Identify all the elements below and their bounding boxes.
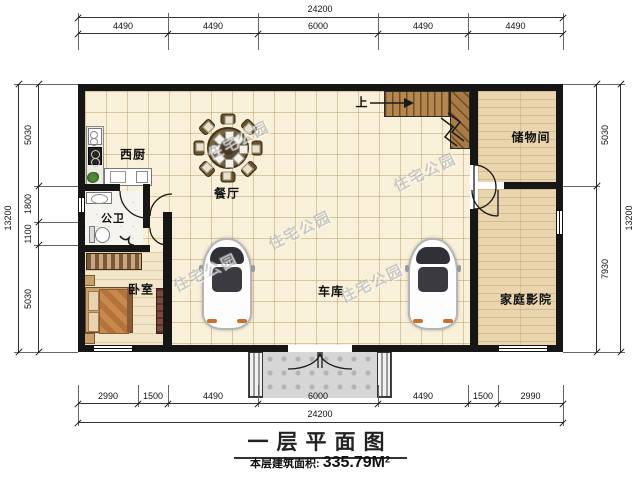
wall-right-section-lower [470,209,478,345]
car-taillight [237,319,247,323]
dimension-line [78,422,563,423]
dim-label: 1500 [143,391,163,401]
dim-label: 1100 [23,224,33,243]
dim-label: 4490 [113,21,133,31]
wall-bathroom-top-b [143,184,150,191]
counter-sink-icon [136,171,148,183]
car-mirror [457,265,461,272]
nightstand [84,333,95,344]
extension-line [34,245,78,246]
dim-label: 2990 [520,391,540,401]
wall-bathroom-bottom [85,245,150,252]
staircase-winder [450,91,470,149]
dining-chair [221,172,236,183]
dining-chair [194,141,205,156]
dim-label: 4490 [203,391,223,401]
bath-sink-basin-icon [91,194,108,204]
floor-plan-page: 西厨 餐厅 公卫 卧室 车库 储物间 家庭影院 上 住宅公园 住宅公园 住宅公园… [0,0,640,477]
entrance-opening [288,345,352,352]
dimension-line [620,84,621,352]
dim-label: 6000 [308,21,328,31]
dim-label: 24200 [307,4,332,14]
toilet-bowl-icon [95,227,110,243]
window-bathroom [78,197,85,213]
bed-quilt [99,289,129,334]
window-right-wall [556,210,563,235]
car-right [408,238,458,330]
floor-area-note: 本层建筑面积: 335.79M2 [0,454,640,472]
car-mirror [251,265,255,272]
nightstand [84,275,95,286]
staircase-straight-flight [384,91,450,117]
extension-line [34,222,78,223]
burner-icon [91,158,100,167]
dimension-line [78,33,563,34]
dim-label: 13200 [624,205,634,230]
dim-label: 4490 [203,21,223,31]
dim-label: 2990 [98,391,118,401]
dim-label: 5030 [600,125,610,145]
wall-storage-theater-divider [504,182,556,189]
dimension-line [38,84,39,352]
dim-label: 13200 [3,205,13,230]
dim-label: 5030 [23,288,33,308]
car-taillight [413,319,423,323]
room-label-bathroom: 公卫 [101,210,125,226]
dimension-line [78,403,563,404]
dim-label: 4490 [413,21,433,31]
place-setting [225,159,234,168]
exterior-wall-top [78,84,563,91]
bed-pillows [88,291,99,311]
car-windshield [416,247,450,264]
dim-label: 1500 [473,391,493,401]
dimension-line [596,84,597,352]
room-label-kitchen: 西厨 [120,146,146,163]
window-bedroom [93,345,133,352]
floor-area-label: 本层建筑面积: [250,458,320,470]
floor-area-sup: 2 [385,454,390,464]
dimension-line [18,84,19,352]
extension-line [34,186,78,187]
porch-column-right [377,352,391,397]
dim-label: 4490 [413,391,433,401]
sink-basin-icon [90,138,98,146]
car-roof [418,267,448,292]
dim-label: 6000 [308,391,328,401]
dim-label: 1800 [23,194,33,214]
dim-label: 4490 [505,21,525,31]
floor-area-value: 335.79M [323,454,385,471]
dim-label: 7930 [600,259,610,279]
dimension-line [78,17,563,18]
dining-chair [221,114,236,125]
room-label-home-theater: 家庭影院 [500,291,552,308]
car-taillight [443,319,453,323]
room-label-storage: 储物间 [511,129,550,146]
room-label-bedroom: 卧室 [128,281,154,298]
dim-label: 24200 [307,409,332,419]
car-taillight [207,319,217,323]
home-theater-floor [478,189,556,345]
bed [85,287,133,333]
extension-line [14,84,78,85]
kitchen-appliance [110,171,126,183]
drawing-title: 一层平面图 [0,426,640,456]
exterior-wall-left [78,84,85,352]
wall-bathroom-right [143,191,150,228]
wall-bathroom-top-a [85,184,120,191]
wardrobe [86,253,142,270]
stairs-up-label: 上 [355,94,368,111]
wall-right-section-upper [470,91,478,165]
car-mirror [405,265,409,272]
porch-column-left [249,352,263,397]
window-home-theater [498,345,548,352]
dim-label: 5030 [23,125,33,145]
bed-pillows [88,312,99,332]
extension-line [14,352,78,353]
room-label-dining: 餐厅 [214,185,240,202]
